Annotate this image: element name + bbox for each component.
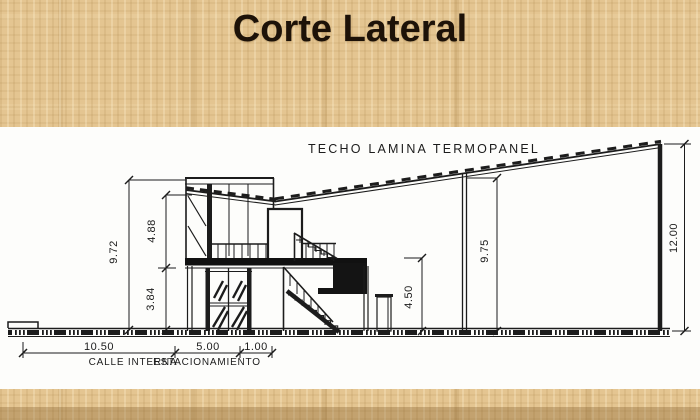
bottom-dimension-chain — [19, 342, 276, 358]
slide-background: Corte Lateral — [0, 0, 700, 420]
dim-mid-column-text: 9.75 — [479, 239, 491, 262]
mid-column — [463, 174, 467, 332]
entry-door — [364, 266, 393, 331]
roof-label: TECHO LAMINA TERMOPANEL — [308, 142, 540, 156]
label-estacionamiento: ESTACIONAMIENTO — [153, 357, 261, 368]
dim-canopy-text: 4.50 — [403, 285, 415, 308]
dim-lower-level-text: 3.84 — [145, 287, 157, 310]
dim-upper-level-text: 4.88 — [146, 219, 158, 242]
lower-flight — [284, 267, 340, 332]
mezzanine-guardrail — [212, 244, 274, 258]
section-drawing: 10.50 5.00 1.00 CALLE INTERNA ESTACIONAM… — [0, 0, 700, 420]
curb-step — [8, 322, 38, 328]
shaft-box — [268, 209, 302, 258]
dim-parking-width: 5.00 — [196, 341, 219, 353]
dim-street-width: 10.50 — [84, 341, 114, 353]
dim-walk-width: 1.00 — [244, 341, 267, 353]
storefront-windows — [188, 266, 253, 331]
dim-left-total-text: 9.72 — [108, 240, 120, 263]
bottom-shade — [0, 407, 700, 420]
dim-right-wall-text: 12.00 — [668, 223, 680, 253]
left-building-frame — [185, 178, 274, 258]
